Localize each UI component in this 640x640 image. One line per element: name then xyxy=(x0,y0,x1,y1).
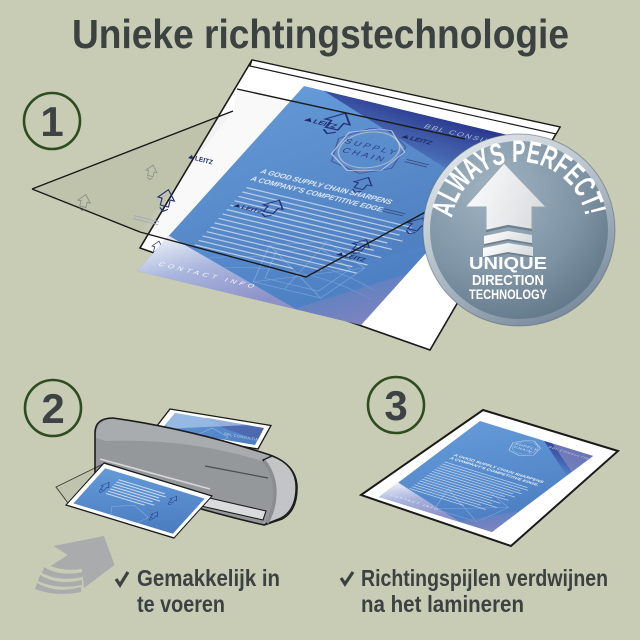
svg-text:UNIQUE: UNIQUE xyxy=(469,253,547,273)
svg-text:Richtingspijlen verdwijnen: Richtingspijlen verdwijnen xyxy=(361,565,608,591)
svg-text:na het lamineren: na het lamineren xyxy=(361,591,524,617)
svg-text:TECHNOLOGY: TECHNOLOGY xyxy=(469,287,547,302)
svg-text:1: 1 xyxy=(40,98,63,145)
svg-text:Gemakkelijk in: Gemakkelijk in xyxy=(137,565,280,591)
svg-text:te voeren: te voeren xyxy=(137,591,225,617)
svg-text:2: 2 xyxy=(41,385,64,432)
svg-text:Unieke richtingstechnologie: Unieke richtingstechnologie xyxy=(72,11,569,57)
svg-text:3: 3 xyxy=(384,382,407,429)
